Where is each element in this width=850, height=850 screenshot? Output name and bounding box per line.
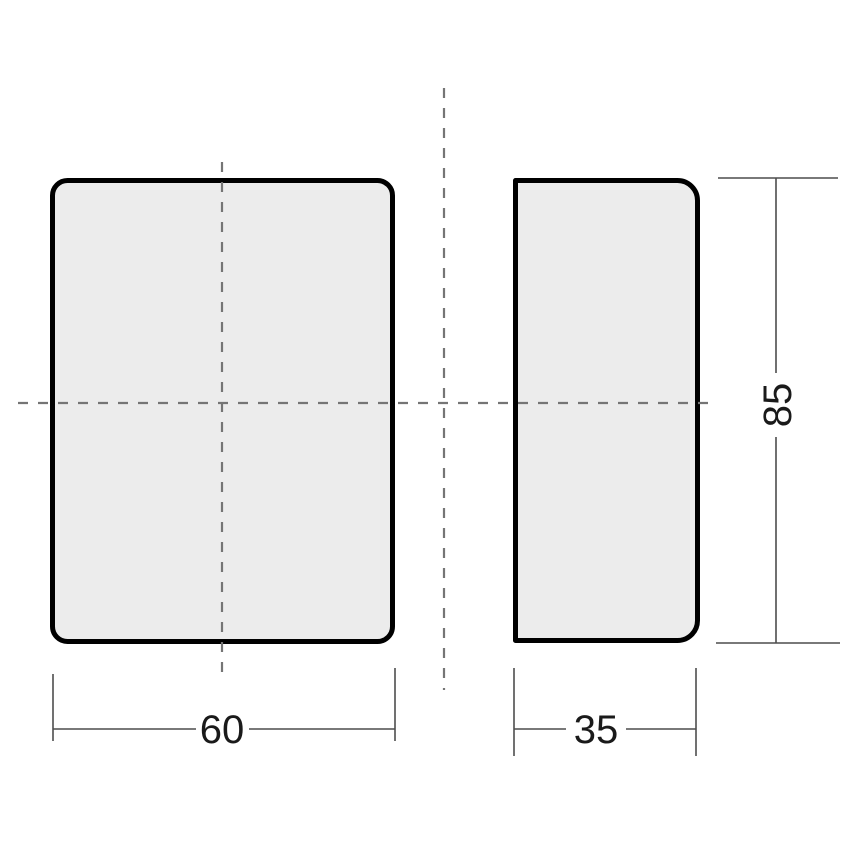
front-width-dimension-label: 60 [200, 708, 245, 752]
height-dimension-label: 85 [756, 383, 800, 428]
front-width-dimension: 60 [53, 668, 395, 752]
side-view-body [516, 181, 698, 641]
technical-drawing: 60 35 85 [0, 0, 850, 850]
side-depth-dimension: 35 [514, 668, 696, 756]
height-dimension: 85 [716, 178, 840, 643]
side-depth-dimension-label: 35 [574, 708, 619, 752]
drawing-canvas: 60 35 85 [0, 0, 850, 850]
